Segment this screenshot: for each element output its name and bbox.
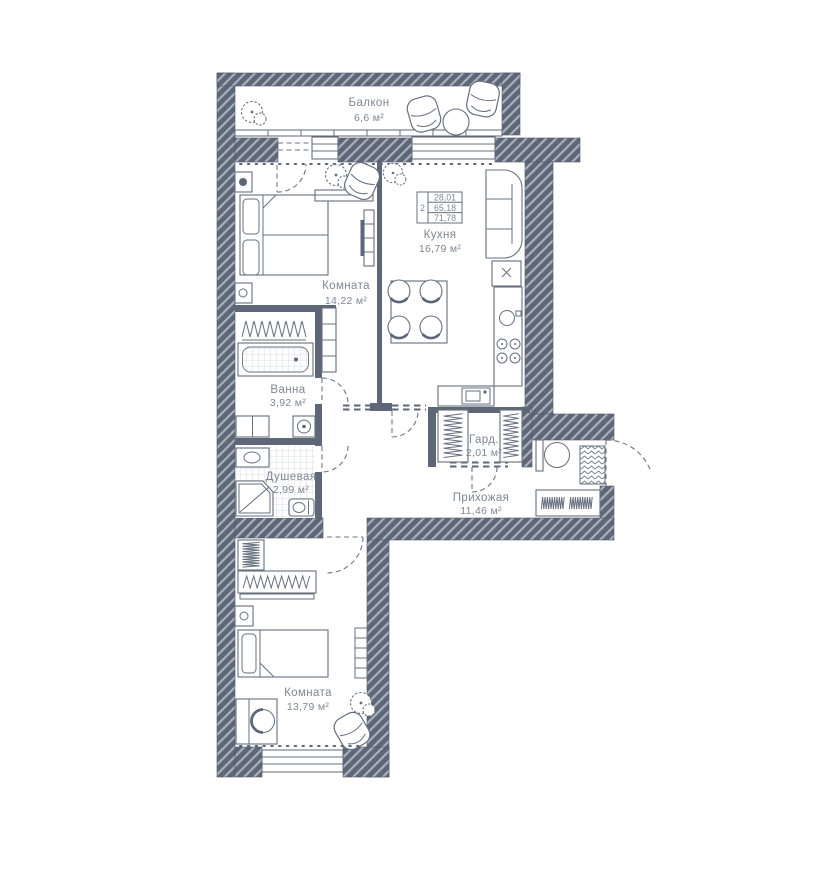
chair — [388, 280, 410, 302]
wall-room2-bottom-left — [235, 747, 262, 777]
partition-hall-stub — [370, 403, 392, 411]
kitchen-counter — [494, 287, 522, 386]
room-label-hallway-area: 11,46 м² — [460, 505, 502, 517]
bathtub-inner — [243, 347, 309, 372]
lounge-chair — [405, 94, 443, 135]
bedroom-window — [312, 137, 338, 159]
single-bed — [238, 630, 328, 677]
mirror — [545, 443, 570, 468]
console-table — [536, 440, 543, 471]
floor-plan: Балкон 6,6 м² Комната 14,22 м² — [0, 0, 832, 877]
round-table — [443, 109, 469, 135]
nightstand — [235, 283, 252, 303]
stamp-total-area: 71,78 — [434, 213, 456, 223]
wall-band-c — [495, 138, 580, 162]
room-label-bedroom-area: 14,22 м² — [325, 295, 368, 307]
wall-band-a — [235, 138, 278, 162]
doormat — [580, 446, 605, 484]
kitchen-sofa — [486, 170, 522, 258]
fridge — [492, 261, 521, 286]
wall-room2-right — [367, 540, 389, 777]
room-label-balcony-area: 6,6 м² — [354, 112, 384, 124]
partition-bath-right-upper — [315, 305, 322, 378]
room-label-kitchen-name: Кухня — [424, 229, 457, 241]
kitchen-door-swing — [392, 411, 418, 437]
room-bedroom2: Комната 13,79 м² — [235, 537, 375, 772]
bedroom2-door-swing — [327, 537, 363, 573]
washing-machine-knob — [302, 425, 306, 429]
room-label-bedroom2-area: 13,79 м² — [287, 701, 330, 713]
wall-band-b — [338, 138, 412, 162]
room-label-bedroom-name: Комната — [322, 280, 370, 292]
bath-door-swing — [322, 378, 348, 404]
room-label-bath-name: Ванна — [270, 384, 305, 396]
nightstand — [235, 606, 253, 626]
room-label-shower-area: 2,99 м² — [273, 484, 309, 496]
room-label-bedroom2-name: Комната — [284, 687, 332, 699]
wall-left — [217, 73, 235, 777]
room-label-bath-area: 3,92 м² — [270, 397, 306, 409]
room-label-shower-name: Душевая — [266, 471, 317, 483]
partition-bedroom-bottom — [235, 305, 336, 312]
room-label-wardrobe-name: Гард. — [469, 434, 499, 446]
towel-radiator — [242, 321, 306, 340]
bathtub-drain — [294, 358, 298, 362]
room-bedroom: Комната 14,22 м² — [235, 159, 383, 307]
desk — [236, 699, 277, 744]
room-balcony: Балкон 6,6 м² — [235, 79, 502, 136]
bedroom2-window — [262, 750, 343, 772]
partition-bath-shower — [235, 438, 315, 445]
stamp-living-area: 28,01 — [434, 193, 456, 203]
partition-bath-right-mid — [315, 404, 322, 446]
chair — [388, 316, 410, 338]
shower-vanity — [236, 448, 269, 467]
room-shower: Душевая 2,99 м² — [236, 446, 348, 518]
wardrobe-opening-marks — [450, 463, 508, 467]
lamp-icon — [239, 178, 247, 186]
room-label-hallway-name: Прихожая — [453, 492, 510, 504]
wardrobe-door-swing — [472, 467, 497, 492]
plant-icon — [383, 163, 406, 185]
balcony-door-panel — [278, 143, 312, 150]
floor-plan-drawing: Балкон 6,6 м² Комната 14,22 м² — [0, 0, 832, 877]
room-label-balcony-name: Балкон — [349, 97, 390, 109]
stamp-apartment-area: 65,18 — [434, 203, 456, 213]
room-label-kitchen-area: 16,79 м² — [419, 243, 462, 255]
hall-cabinet — [322, 308, 336, 372]
wall-shower-bottom — [235, 518, 323, 538]
radiator — [355, 628, 367, 678]
partition-bedroom-kitchen — [377, 162, 382, 403]
radiator-fins — [355, 638, 367, 668]
balcony-door-swing — [277, 164, 306, 192]
kitchen-window — [412, 137, 495, 159]
shower-door-swing — [322, 446, 348, 472]
tv-icon — [361, 220, 365, 256]
wall-kitchen-right — [525, 162, 553, 414]
area-stamp: 2 28,01 65,18 71,78 — [417, 192, 462, 223]
wall-entry-right — [600, 486, 614, 520]
wall-hallway-bottom — [367, 518, 614, 540]
shelf — [240, 594, 314, 599]
plant-icon — [242, 102, 267, 126]
room-label-wardrobe-area: 2,01 м² — [466, 447, 502, 459]
wall-entry-top — [520, 414, 614, 440]
partition-wardrobe-left — [428, 407, 436, 467]
chair — [420, 316, 442, 338]
wall-balcony-right — [502, 73, 520, 135]
oven-knob — [483, 390, 486, 393]
room-wardrobe: Гард. 2,01 м² — [438, 410, 522, 462]
entry-area — [536, 440, 651, 516]
wall-room2-bottom-right — [343, 747, 389, 777]
stamp-rooms-count: 2 — [420, 203, 425, 213]
room-kitchen: 2 28,01 65,18 71,78 Кухня 16,79 м² — [383, 163, 522, 406]
chair — [420, 280, 442, 302]
room-hallway: Прихожая 11,46 м² — [343, 406, 509, 518]
entry-door-swing — [606, 440, 651, 486]
wall-wardrobe-right — [522, 407, 532, 467]
